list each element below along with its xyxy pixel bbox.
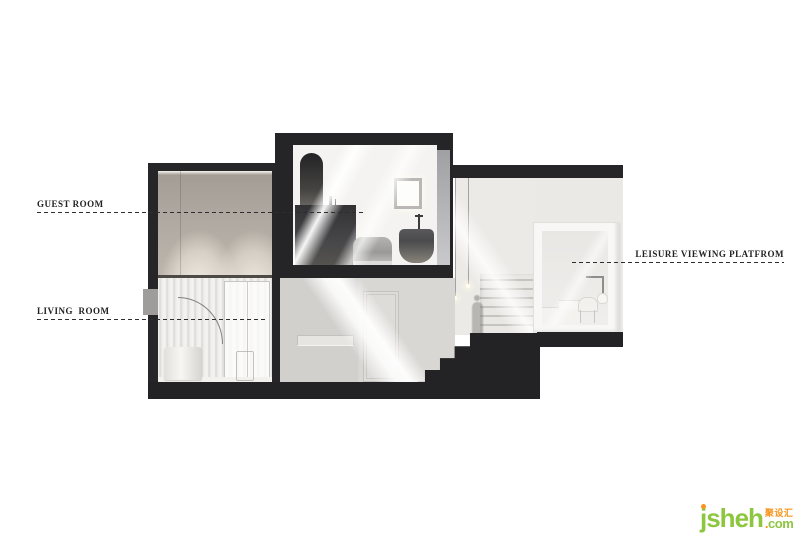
guest-room-leader-line bbox=[37, 212, 363, 214]
living-room-leader-line bbox=[37, 319, 265, 321]
section-render: GUEST ROOM LIVING ROOM LEISURE VIEWING P… bbox=[0, 0, 800, 533]
guest-room-interior bbox=[293, 145, 437, 265]
vanity-counter bbox=[295, 205, 356, 265]
chair-sketch bbox=[236, 351, 254, 381]
guest-room-side-wall bbox=[437, 150, 450, 265]
bed bbox=[353, 237, 392, 265]
platform-chair bbox=[578, 297, 598, 312]
right-wing-roof-band bbox=[453, 165, 623, 178]
logo-suffix: 聚设汇 .com bbox=[765, 508, 794, 529]
platform-steps bbox=[542, 307, 580, 325]
upper-wall-spotlights bbox=[158, 171, 272, 275]
staircase bbox=[480, 274, 535, 335]
pendant-bulb bbox=[466, 284, 470, 288]
platform-frame bbox=[533, 222, 619, 334]
pendant-wire bbox=[468, 178, 469, 284]
platform-interior bbox=[542, 231, 608, 325]
logo-j-dot bbox=[701, 504, 706, 509]
living-room-interior bbox=[158, 275, 272, 382]
human-figure bbox=[472, 302, 483, 335]
pendant-wire bbox=[455, 178, 456, 296]
cove-light bbox=[158, 171, 272, 175]
leisure-platform-leader-line bbox=[572, 262, 784, 264]
logo-brand-text: jsheh bbox=[700, 507, 763, 529]
window-frame bbox=[394, 178, 422, 209]
wall-niche bbox=[297, 335, 354, 346]
chair-leg bbox=[594, 310, 595, 323]
middle-wall bbox=[280, 278, 455, 382]
living-room-label: LIVING ROOM bbox=[37, 306, 110, 317]
left-wall-ledge bbox=[143, 289, 158, 315]
kettle bbox=[597, 293, 608, 304]
leisure-platform-label: LEISURE VIEWING PLATFROM bbox=[562, 249, 784, 260]
reading-lamp bbox=[586, 276, 603, 278]
watermark-logo: jsheh 聚设汇 .com bbox=[700, 501, 793, 529]
side-table bbox=[164, 347, 202, 380]
guest-room-label: GUEST ROOM bbox=[37, 199, 104, 210]
pendant-bulb bbox=[455, 296, 457, 300]
logo-tld: .com bbox=[765, 518, 793, 529]
bathtub bbox=[399, 229, 434, 263]
wall-seam bbox=[180, 171, 181, 275]
base-plinth-right bbox=[537, 332, 623, 347]
toiletry-bottles bbox=[329, 196, 332, 205]
interior-door bbox=[363, 291, 399, 382]
chair-leg bbox=[580, 310, 581, 323]
stair-hall bbox=[455, 178, 535, 335]
reading-lamp-stem bbox=[602, 276, 604, 302]
